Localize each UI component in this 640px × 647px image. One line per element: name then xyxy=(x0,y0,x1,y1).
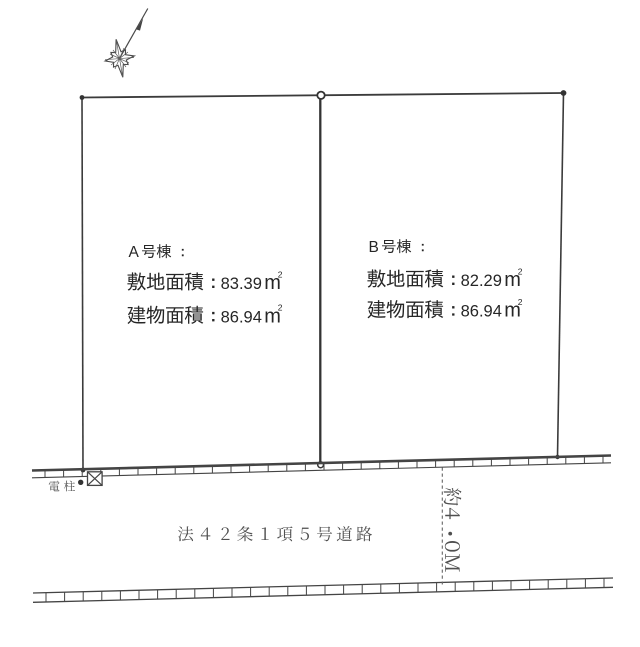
svg-text:2: 2 xyxy=(518,297,523,307)
svg-text:86.94: 86.94 xyxy=(221,308,262,326)
svg-text:86.94: 86.94 xyxy=(461,303,502,321)
svg-text:2: 2 xyxy=(518,266,523,276)
svg-text:83.39: 83.39 xyxy=(221,275,262,293)
svg-text:2: 2 xyxy=(278,269,283,279)
svg-text:82.29: 82.29 xyxy=(461,272,502,290)
svg-text:B: B xyxy=(369,239,379,256)
svg-text:A: A xyxy=(129,244,140,261)
svg-text:2: 2 xyxy=(278,303,283,313)
